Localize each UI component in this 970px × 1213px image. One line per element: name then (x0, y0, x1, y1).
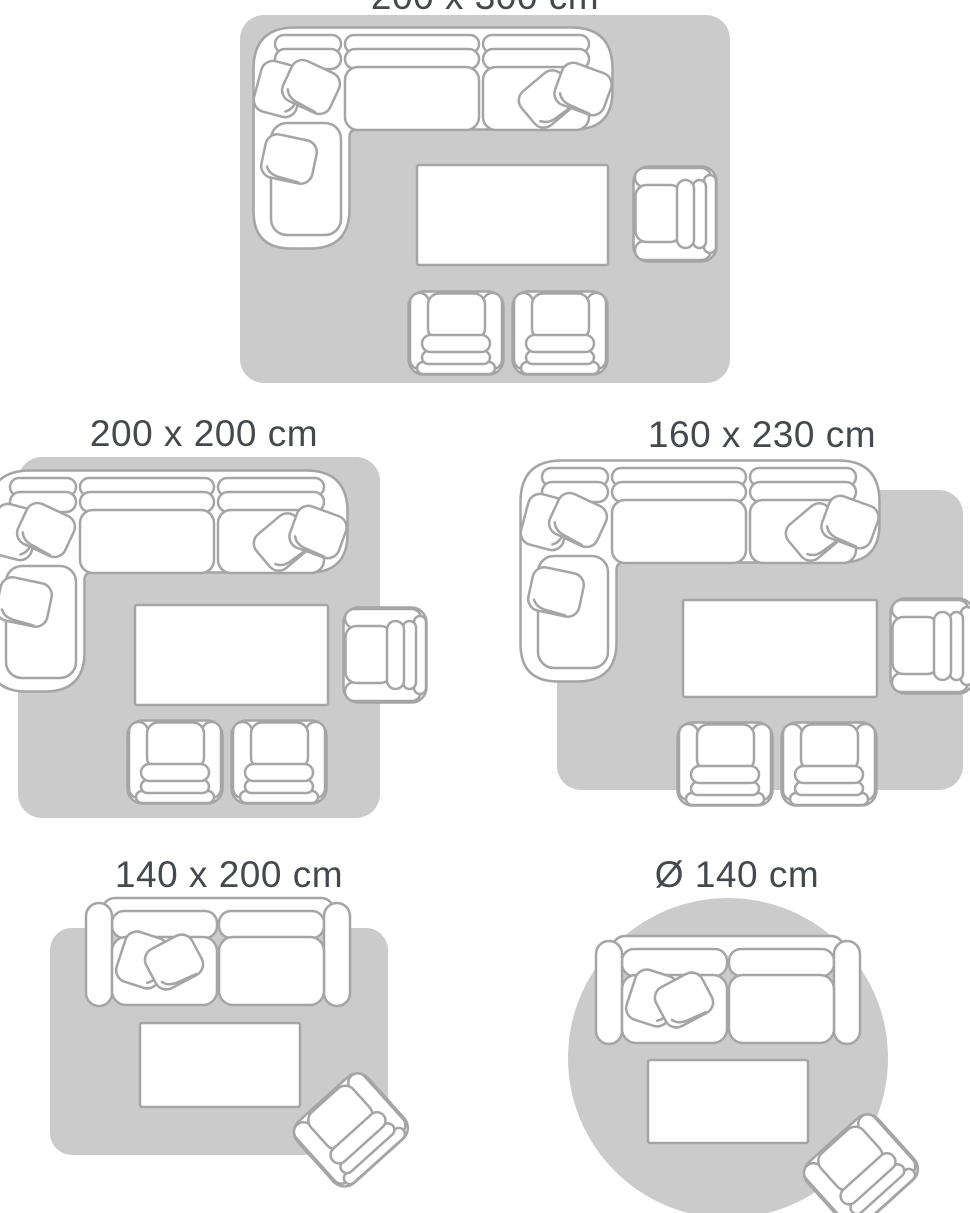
panel-size-200x300: 200 x 300 cm (240, 0, 730, 383)
armchair-icon (513, 292, 608, 375)
armchair-icon (128, 721, 223, 804)
armchair-icon (344, 608, 427, 703)
coffee-table-icon (140, 1023, 300, 1107)
loveseat-sofa-icon (596, 936, 860, 1044)
panel-size-round-140: Ø 140 cm (568, 854, 924, 1213)
size-label: 160 x 230 cm (648, 414, 876, 455)
size-label: 200 x 300 cm (371, 0, 599, 17)
panel-size-140x200: 140 x 200 cm (50, 854, 414, 1193)
size-label: 200 x 200 cm (90, 413, 318, 454)
size-label: 140 x 200 cm (115, 854, 343, 895)
rug-size-guide-canvas: 200 x 300 cm 200 x 200 cm 160 x 230 cm 1… (0, 0, 970, 1213)
armchair-icon (409, 292, 504, 375)
armchair-icon (678, 723, 773, 806)
coffee-table-icon (683, 600, 877, 697)
armchair-icon (634, 167, 717, 262)
armchair-icon (232, 721, 327, 804)
coffee-table-icon (135, 605, 328, 705)
coffee-table-icon (417, 165, 608, 265)
rug-size-guide: 200 x 300 cm 200 x 200 cm 160 x 230 cm 1… (0, 0, 970, 1213)
armchair-icon (782, 723, 877, 806)
armchair-icon (891, 599, 970, 694)
panel-size-200x200: 200 x 200 cm (0, 413, 427, 818)
size-label: Ø 140 cm (655, 854, 819, 895)
coffee-table-icon (648, 1060, 808, 1143)
loveseat-sofa-icon (86, 898, 350, 1006)
panel-size-160x230: 160 x 230 cm (518, 414, 970, 806)
